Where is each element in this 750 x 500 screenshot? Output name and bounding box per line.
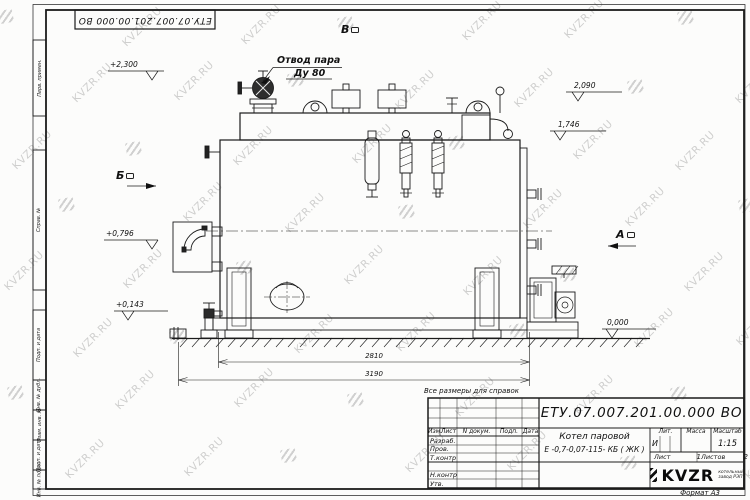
margin-label-vzam-inv: Взам. инв. №	[33, 410, 46, 440]
kvzr-logo-subtitle-2: завод РЭП	[718, 475, 744, 480]
elevation-2300: +2,300	[110, 61, 138, 69]
view-label-b: Б	[116, 170, 134, 181]
elevation-2090: 2,090	[574, 82, 595, 90]
elevation-0796: +0,796	[106, 230, 134, 238]
company-logo-cell: KVZR котельный завод РЭП	[650, 462, 744, 488]
top-stamp-doc-number: ЕТУ.07.007.201.00.000 ВО	[75, 10, 215, 29]
change-col-izm: Изм.	[428, 429, 440, 435]
margin-label-sprav-no: Справ. №	[33, 150, 46, 290]
change-col-doc: N докум.	[457, 429, 496, 435]
sheet-ref-symbol	[351, 27, 359, 33]
product-name-line1: Котел паровой	[539, 433, 650, 442]
titleblock-doc-number: ЕТУ.07.007.201.00.000 ВО	[540, 399, 743, 427]
sheet-ref-symbol	[627, 232, 635, 238]
sig-row-utv: Утв.	[428, 481, 444, 488]
reference-note: Все размеры для справок	[424, 388, 519, 395]
view-label-v: В	[341, 24, 359, 35]
scale-value: 1:15	[711, 436, 744, 452]
elevation-0143: +0,143	[116, 301, 144, 309]
lit-header: Лит.	[650, 429, 681, 435]
scale-header: Масштаб	[711, 429, 744, 435]
steam-outlet-label: Отвод пара	[277, 56, 340, 66]
change-col-date: Дата	[522, 429, 539, 435]
elevation-0000: 0,000	[607, 319, 628, 327]
margin-label-inv-podl: Инв. № подл.	[33, 470, 46, 489]
sig-row-razrab: Разраб.	[428, 438, 456, 445]
sheet-ref-symbol	[126, 173, 134, 179]
lit-value: И	[650, 436, 660, 452]
sig-row-tkontr: Т.контр	[428, 455, 456, 462]
sig-row-nkontr: Н.контр	[428, 472, 457, 479]
elevation-1746: 1,746	[558, 121, 579, 129]
steam-outlet-size-label: Ду 80	[294, 69, 325, 79]
change-col-sign: Подп.	[496, 429, 522, 435]
view-label-a: А	[616, 229, 635, 240]
kvzr-logo-icon	[650, 468, 657, 482]
margin-label-podp-data-1: Подп. и дата	[33, 310, 46, 380]
dimension-3190: 3190	[365, 371, 383, 378]
drawing-sheet: KVZR.RUKVZR.RUKVZR.RUKVZR.RUKVZR.RUKVZR.…	[0, 0, 750, 500]
dimension-2810: 2810	[365, 353, 383, 360]
format-label: Формат А3	[640, 490, 750, 497]
sheets-total-cell: Листов2	[697, 452, 750, 462]
change-col-list: Лист	[440, 429, 457, 435]
kvzr-logo-text: KVZR	[661, 466, 714, 485]
sig-row-prov: Пров.	[428, 446, 449, 453]
product-name-line2: Е -0,7-0,07-115- КБ ( ЖК )	[539, 446, 650, 454]
margin-label-perv-primen: Перв. примен.	[33, 40, 46, 116]
margin-label-inv-dubl: Инв. № дубл.	[33, 380, 46, 410]
mass-header: Масса	[681, 429, 711, 435]
